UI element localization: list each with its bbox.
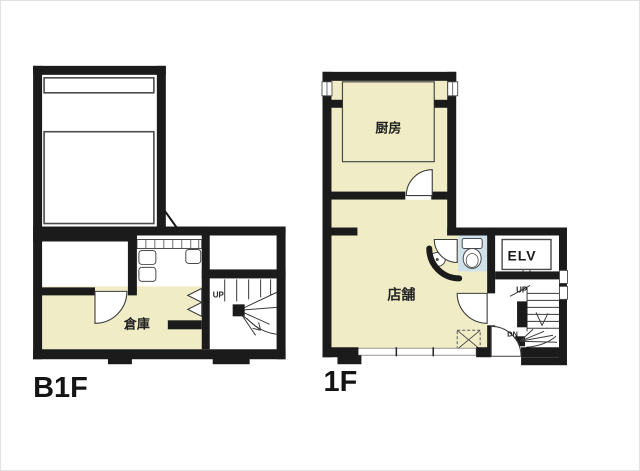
- first-floor-plan: 厨房 店舗 ELV UP DN 1F: [322, 72, 567, 398]
- stool: [139, 267, 156, 281]
- sink-drain: [436, 258, 439, 261]
- wall: [521, 347, 567, 357]
- kitchen-label: 厨房: [375, 121, 401, 136]
- wall: [476, 347, 491, 357]
- wall: [447, 228, 567, 236]
- window: [559, 270, 567, 283]
- wall: [202, 227, 210, 350]
- wall-tab: [108, 355, 132, 364]
- wall: [322, 72, 456, 81]
- wall-tab: [521, 357, 559, 365]
- wall: [431, 192, 448, 200]
- floor-plan-svg: 倉庫 UP B1F: [1, 1, 639, 470]
- wall: [277, 227, 286, 360]
- counter: [137, 239, 202, 248]
- wall-stub: [330, 100, 342, 108]
- stool: [186, 249, 201, 263]
- floor-plan-image: 倉庫 UP B1F: [0, 0, 640, 471]
- 1f-floor-label: 1F: [323, 366, 357, 398]
- b1f-storage-label: 倉庫: [123, 316, 150, 331]
- bed-headboard: [44, 78, 154, 93]
- stair-wall-stub: [517, 301, 527, 327]
- stair-winders: [520, 329, 557, 342]
- b1f-plan: 倉庫 UP B1F: [33, 66, 285, 404]
- wall: [322, 72, 331, 357]
- stair-direction-arrow: [243, 315, 261, 330]
- stool: [139, 250, 156, 264]
- b1f-stair-up-label: UP: [213, 290, 225, 299]
- stair-newel-post: [233, 304, 245, 316]
- window: [559, 286, 567, 299]
- wall-tab: [213, 355, 250, 364]
- wall: [495, 271, 559, 279]
- elevator-label: ELV: [508, 247, 537, 263]
- b1f-floor-label: B1F: [33, 372, 88, 404]
- wall-stub: [434, 100, 448, 108]
- wall: [33, 234, 137, 242]
- wall: [38, 287, 95, 295]
- b1f-counter-room: [137, 239, 202, 281]
- wall-stub: [330, 228, 357, 236]
- 1f-stair-down-label: DN: [507, 329, 518, 338]
- wall: [447, 72, 456, 236]
- wall-stub: [168, 320, 202, 329]
- wall: [33, 66, 166, 75]
- wall: [202, 269, 286, 278]
- b1f-staircase: [225, 279, 277, 335]
- shop-floor: [330, 200, 487, 350]
- 1f-stair-up-label: UP: [516, 285, 528, 294]
- b1f-bed: [44, 78, 154, 224]
- toilet-tank: [462, 238, 482, 248]
- wall-tab: [337, 355, 361, 364]
- shop-label: 店舗: [387, 286, 415, 302]
- wall: [487, 228, 495, 294]
- toilet-bowl: [463, 248, 481, 268]
- stair-treads: [527, 287, 559, 331]
- wall: [330, 192, 405, 200]
- wall: [33, 66, 42, 359]
- storefront-window: [357, 347, 476, 356]
- bed-mattress: [44, 132, 154, 224]
- wall: [128, 236, 137, 296]
